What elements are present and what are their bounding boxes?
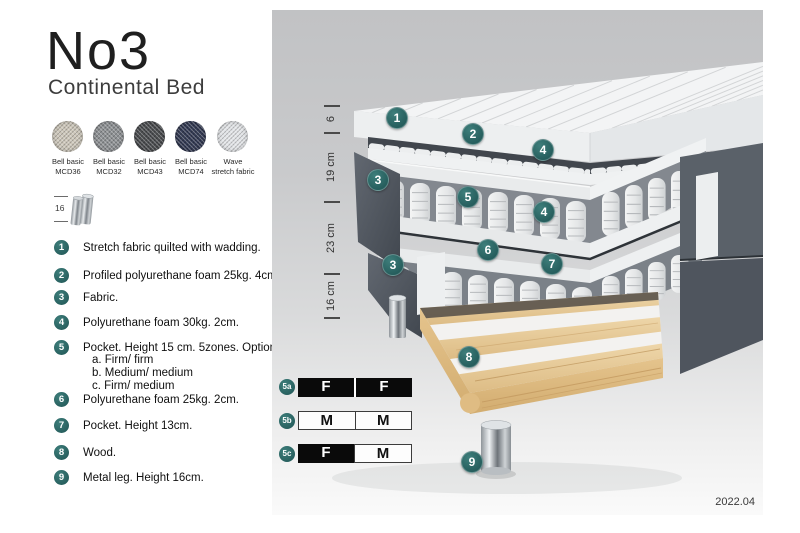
spec-item: 7 Pocket. Height 13cm. — [54, 418, 192, 433]
diagram-panel: 6 19 cm 23 cm 16 cm 1 2 4 3 5 4 6 7 3 8 … — [272, 10, 763, 515]
version-stamp: 2022.04 — [715, 496, 755, 508]
firmness-bar: F M — [298, 444, 412, 463]
spec-item: 5 Pocket. Height 15 cm. 5zones. Option: — [54, 340, 279, 355]
callout-9: 9 — [461, 451, 483, 473]
spec-item-number: 9 — [54, 470, 69, 485]
fabric-swatch-label: Bell basicMCD74 — [167, 157, 215, 176]
fabric-swatch-icon[interactable] — [52, 121, 83, 152]
callout-5: 5 — [457, 186, 479, 208]
spec-item-number: 1 — [54, 240, 69, 255]
firmness-option-badge: 5a — [279, 379, 295, 395]
firmness-bar: M M — [298, 411, 412, 430]
dimension-tick — [54, 196, 68, 197]
spec-item: 8 Wood. — [54, 445, 116, 460]
spec-item-text: Fabric. — [83, 292, 118, 304]
spec-item-text: Polyurethane foam 25kg. 2cm. — [83, 394, 239, 406]
spec-item: 2 Profiled polyurethane foam 25kg. 4cm. — [54, 268, 280, 283]
product-title: No3 — [46, 20, 151, 82]
callout-7: 7 — [541, 253, 563, 275]
product-subtitle: Continental Bed — [48, 76, 205, 100]
callout-2: 2 — [462, 123, 484, 145]
spec-item: 9 Metal leg. Height 16cm. — [54, 470, 204, 485]
callout-6: 6 — [477, 239, 499, 261]
leg-height-value: 16 — [55, 203, 64, 213]
spec-item-text: Stretch fabric quilted with wadding. — [83, 242, 261, 254]
dimension-label: 23 cm — [325, 208, 339, 268]
firmness-cell: M — [298, 411, 356, 430]
callout-3: 3 — [382, 254, 404, 276]
dimension-label: 16 cm — [325, 266, 339, 326]
fabric-swatch-icon[interactable] — [217, 121, 248, 152]
fabric-swatch-icon[interactable] — [134, 121, 165, 152]
spec-item: 3 Fabric. — [54, 290, 118, 305]
spec-item-number: 3 — [54, 290, 69, 305]
metal-leg-icon — [68, 190, 102, 230]
firmness-cell: M — [356, 411, 413, 430]
spec-item-text: Metal leg. Height 16cm. — [83, 472, 204, 484]
bed-cutaway-illustration — [272, 10, 763, 515]
fabric-swatch-label: Wavestretch fabric — [209, 157, 257, 176]
callout-4: 4 — [533, 201, 555, 223]
spec-item: 1 Stretch fabric quilted with wadding. — [54, 240, 261, 255]
spec-item-number: 7 — [54, 418, 69, 433]
fabric-swatch-icon[interactable] — [175, 121, 206, 152]
firmness-option-badge: 5b — [279, 413, 295, 429]
callout-4: 4 — [532, 139, 554, 161]
spec-item-number: 5 — [54, 340, 69, 355]
callout-8: 8 — [458, 346, 480, 368]
spec-item-text: Polyurethane foam 30kg. 2cm. — [83, 317, 239, 329]
spec-item-text: Pocket. Height 13cm. — [83, 420, 192, 432]
spec-sheet-page: No3 Continental Bed Bell basicMCD36 Bell… — [0, 0, 800, 533]
fabric-swatch-icon[interactable] — [93, 121, 124, 152]
dimension-tick — [54, 221, 68, 222]
dimension-label: 19 cm — [325, 137, 339, 197]
spec-item-number: 6 — [54, 392, 69, 407]
spec-item: 6 Polyurethane foam 25kg. 2cm. — [54, 392, 239, 407]
firmness-cell: F — [356, 378, 412, 397]
dimension-tick — [324, 201, 340, 203]
callout-3: 3 — [367, 169, 389, 191]
spec-item-text: Wood. — [83, 447, 116, 459]
spec-item-text: Profiled polyurethane foam 25kg. 4cm. — [83, 270, 280, 282]
firmness-option-badge: 5c — [279, 446, 295, 462]
spec-item: 4 Polyurethane foam 30kg. 2cm. — [54, 315, 239, 330]
spec-item-number: 8 — [54, 445, 69, 460]
firmness-cell: M — [354, 444, 412, 463]
callout-1: 1 — [386, 107, 408, 129]
spec-item-text: Pocket. Height 15 cm. 5zones. Option: — [83, 342, 279, 354]
firmness-bar: F F — [298, 378, 412, 397]
firmness-cell: F — [298, 444, 354, 463]
spec-item-number: 4 — [54, 315, 69, 330]
spec-item-number: 2 — [54, 268, 69, 283]
pocket-firmness-options: a. Firm/ firm b. Medium/ medium c. Firm/… — [92, 354, 193, 394]
firmness-cell: F — [298, 378, 354, 397]
